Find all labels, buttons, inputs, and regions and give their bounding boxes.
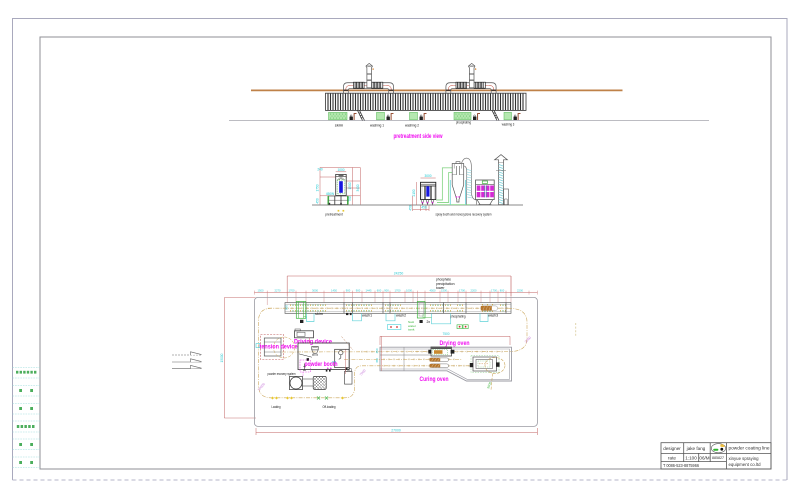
svg-text:2150: 2150 [412,189,416,196]
svg-text:2200: 2200 [524,336,532,344]
svg-text:1700: 1700 [459,288,465,292]
svg-text:27000: 27000 [391,429,401,433]
svg-text:tension device: tension device [260,343,298,350]
svg-text:1500: 1500 [258,289,264,293]
svg-text:900: 900 [356,288,361,292]
svg-text:800: 800 [500,288,505,292]
svg-text:1000: 1000 [337,168,344,172]
svg-text:900: 900 [346,288,351,292]
svg-text:2270: 2270 [275,289,281,293]
svg-text:7500: 7500 [359,368,367,376]
svg-text:powder recovery system: powder recovery system [268,372,296,376]
svg-text:1700: 1700 [395,288,401,292]
svg-text:tower: tower [436,286,445,290]
svg-text:885827: 885827 [712,456,724,460]
svg-text:phosphating: phosphating [456,120,471,124]
svg-text:2200: 2200 [471,288,477,292]
svg-text:15000: 15000 [257,382,266,392]
svg-text:1:100: 1:100 [685,455,697,460]
svg-text:rate: rate [668,455,676,460]
svg-text:450: 450 [316,198,320,204]
svg-text:washing 3: washing 3 [502,122,515,126]
svg-text:450: 450 [375,358,379,363]
svg-text:3000: 3000 [312,288,318,292]
svg-text:450: 450 [421,206,427,210]
svg-text:1000: 1000 [406,288,412,292]
svg-text:tank: tank [408,328,415,332]
svg-text:600: 600 [285,305,289,310]
svg-text:xinyue spraying: xinyue spraying [729,456,760,461]
svg-text:pretreatment: pretreatment [325,212,343,216]
svg-text:washing 1: washing 1 [370,124,384,128]
svg-text:600: 600 [377,288,382,292]
svg-text:powder booth: powder booth [305,361,338,368]
svg-text:washing 2: washing 2 [405,124,419,128]
svg-text:2200: 2200 [517,288,523,292]
svg-text:1750: 1750 [316,184,320,191]
svg-text:Off-loading: Off-loading [323,405,336,409]
svg-text:T 0086-523-8875966: T 0086-523-8875966 [663,463,700,468]
svg-text:240: 240 [317,168,323,172]
svg-text:wash1: wash1 [362,314,372,318]
svg-text:3000: 3000 [424,174,431,178]
svg-text:equipment co.ltd: equipment co.ltd [729,462,762,467]
svg-text:7500: 7500 [442,332,449,336]
svg-text:phosphating: phosphating [451,315,466,319]
svg-text:Drying oven: Drying oven [440,340,470,347]
svg-text:1445: 1445 [366,288,372,292]
svg-text:Curing oven: Curing oven [420,376,449,383]
svg-text:450: 450 [409,205,413,211]
svg-text:3400: 3400 [356,184,360,191]
svg-text:Loading: Loading [272,405,281,409]
svg-text:jake fang: jake fang [686,446,706,451]
svg-text:wash3: wash3 [488,314,498,318]
svg-text:designer: designer [663,446,681,451]
svg-text:1700: 1700 [289,288,295,292]
svg-text:750: 750 [348,196,352,202]
svg-text:pretreatment side view: pretreatment side view [394,133,444,140]
svg-text:Driving device: Driving device [294,338,332,345]
svg-text:1700: 1700 [491,288,497,292]
svg-text:1450: 1450 [331,288,337,292]
svg-text:powder coating line: powder coating line [729,445,771,450]
svg-text:15000: 15000 [220,353,224,362]
svg-text:450: 450 [375,348,379,353]
svg-text:06/M: 06/M [699,455,709,460]
svg-text:2x: 2x [427,320,431,324]
svg-text:skim: skim [315,312,323,316]
svg-text:skim: skim [335,124,344,128]
svg-text:24250: 24250 [394,272,404,276]
svg-text:1500: 1500 [348,182,352,189]
svg-text:450W: 450W [326,192,334,196]
svg-text:spray booth and monocyclone re: spray booth and monocyclone recovery sys… [436,212,492,216]
svg-text:wash2: wash2 [396,314,406,318]
svg-text:900: 900 [384,288,389,292]
